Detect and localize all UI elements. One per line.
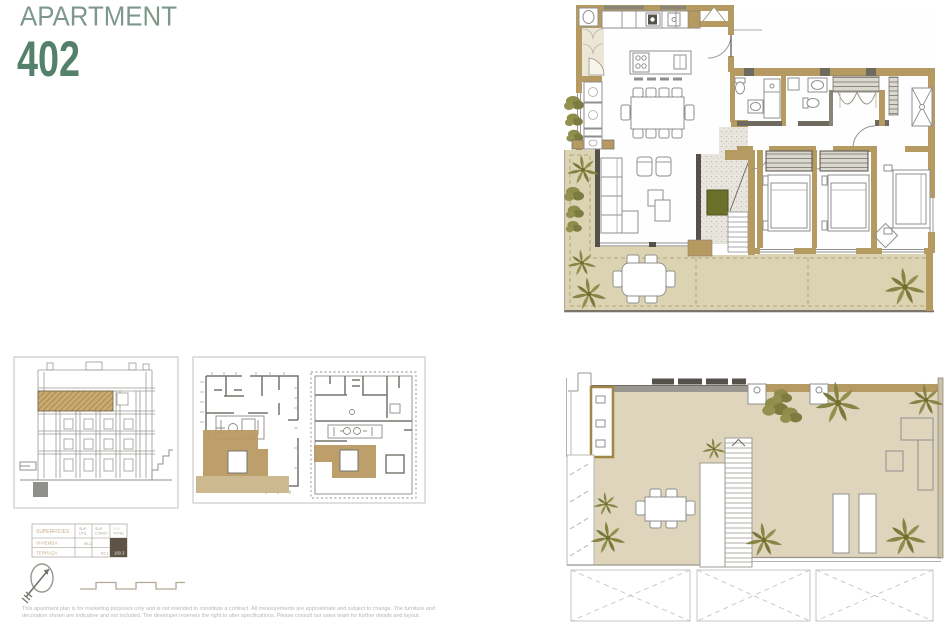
svg-text:62.1: 62.1	[101, 551, 110, 556]
svg-text:UTIL: UTIL	[79, 532, 87, 536]
svg-text:TOTAL: TOTAL	[113, 532, 124, 536]
svg-text:APARTMENT: APARTMENT	[20, 1, 177, 32]
svg-text:SUPERFICIES: SUPERFICIES	[36, 529, 70, 535]
svg-text:VIVIENDA: VIVIENDA	[36, 541, 58, 546]
svg-text:CONST.: CONST.	[95, 532, 108, 536]
svg-text:160.3: 160.3	[114, 551, 125, 556]
svg-text:This apartment plan is for mar: This apartment plan is for marketing pur…	[22, 606, 435, 612]
svg-text:decoration shown are indicativ: decoration shown are indicative and not …	[22, 613, 420, 619]
svg-text:SUP.: SUP.	[113, 527, 121, 531]
svg-text:SUP.: SUP.	[95, 527, 103, 531]
svg-text:98.2: 98.2	[84, 541, 93, 546]
svg-text:SUP.: SUP.	[79, 527, 87, 531]
svg-text:TERRAZA: TERRAZA	[36, 551, 58, 556]
svg-text:402: 402	[17, 31, 80, 87]
